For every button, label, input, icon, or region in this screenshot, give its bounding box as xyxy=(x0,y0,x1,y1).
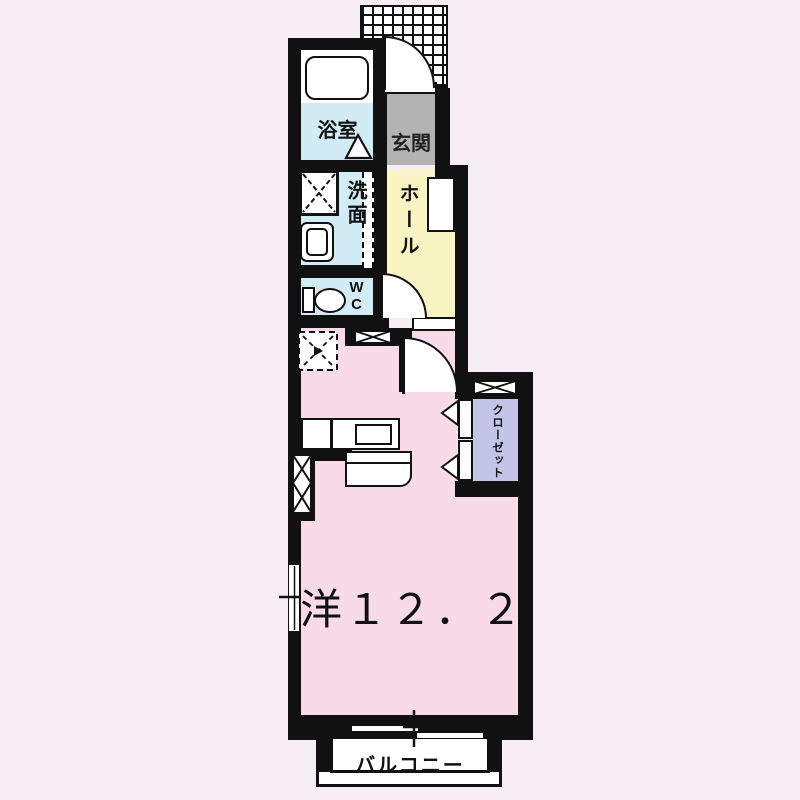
left-window xyxy=(289,565,299,631)
wall-wc-bottom xyxy=(288,315,389,328)
wc-door-leaf xyxy=(380,273,383,320)
wall-closet-right xyxy=(518,372,533,497)
balcony-window-pane-left xyxy=(350,724,420,733)
hall-door-sill xyxy=(412,317,457,331)
floor-plan: 浴室 玄関 洗面 ホール WC クローゼット 洋１２．２ バルコニー xyxy=(0,0,800,800)
washroom-label: 洗面 xyxy=(341,180,370,228)
living-room-label: 洋１２．２ xyxy=(300,576,520,637)
living-door-leaf xyxy=(402,337,405,394)
kitchen-counter-lower-line xyxy=(347,462,410,464)
balcony-label: バルコニー xyxy=(330,749,490,778)
entrance-label: 玄関 xyxy=(387,127,435,156)
shoe-cabinet xyxy=(427,177,455,232)
bathtub xyxy=(305,56,369,100)
wall-washroom-wc xyxy=(288,265,373,278)
kitchen-counter-divider xyxy=(330,419,333,449)
washbasin-inner xyxy=(306,228,328,256)
wc-label: WC xyxy=(348,280,365,313)
wall-hall-right xyxy=(455,165,468,375)
pipe-space xyxy=(292,454,312,514)
closet-door-lower xyxy=(458,440,473,481)
toilet-bowl xyxy=(314,288,346,313)
balcony-pier-left xyxy=(316,739,331,772)
entrance-door-leaf xyxy=(383,36,386,90)
washing-machine-space xyxy=(299,170,339,216)
hall-label: ホール xyxy=(393,183,422,261)
closet-top-window xyxy=(473,380,517,395)
kitchen-counter-lower xyxy=(345,451,412,487)
closet-label: クローゼット xyxy=(489,404,505,479)
kitchen-sink xyxy=(355,424,392,445)
wc-wall-window xyxy=(354,330,392,344)
closet-door-upper xyxy=(458,399,473,439)
bathroom-label: 浴室 xyxy=(301,114,374,143)
